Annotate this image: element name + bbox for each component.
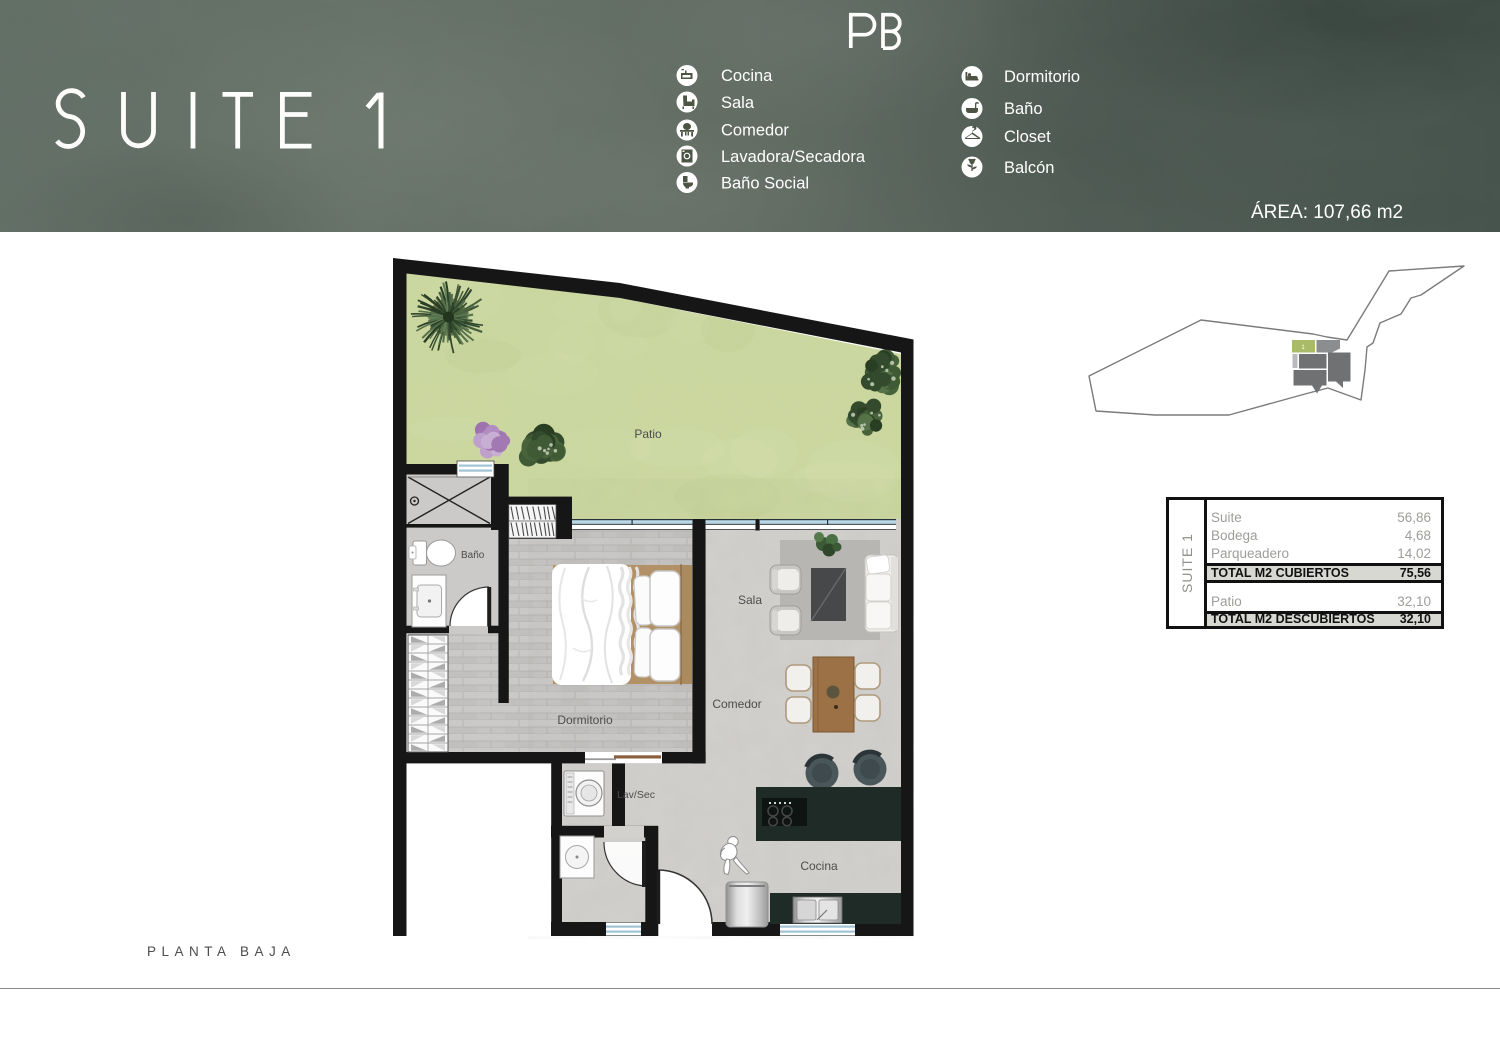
- svg-text:Baño Social: Baño Social: [721, 175, 809, 193]
- svg-text:Dormitorio: Dormitorio: [557, 713, 613, 727]
- svg-text:Sala: Sala: [738, 593, 762, 607]
- svg-text:Sala: Sala: [721, 94, 755, 112]
- svg-text:Dormitorio: Dormitorio: [1004, 68, 1080, 86]
- svg-text:Patio: Patio: [634, 427, 662, 441]
- svg-text:Cocina: Cocina: [800, 859, 838, 873]
- svg-text:Lav/Sec: Lav/Sec: [617, 789, 655, 801]
- svg-text:Closet: Closet: [1004, 128, 1051, 146]
- svg-text:Balcón: Balcón: [1004, 159, 1054, 177]
- svg-text:Baño: Baño: [461, 550, 485, 561]
- svg-text:Baño: Baño: [1004, 100, 1043, 118]
- svg-text:Comedor: Comedor: [721, 122, 789, 140]
- svg-text:Lavadora/Secadora: Lavadora/Secadora: [721, 148, 866, 166]
- svg-text:Comedor: Comedor: [712, 697, 761, 711]
- svg-text:Cocina: Cocina: [721, 67, 773, 85]
